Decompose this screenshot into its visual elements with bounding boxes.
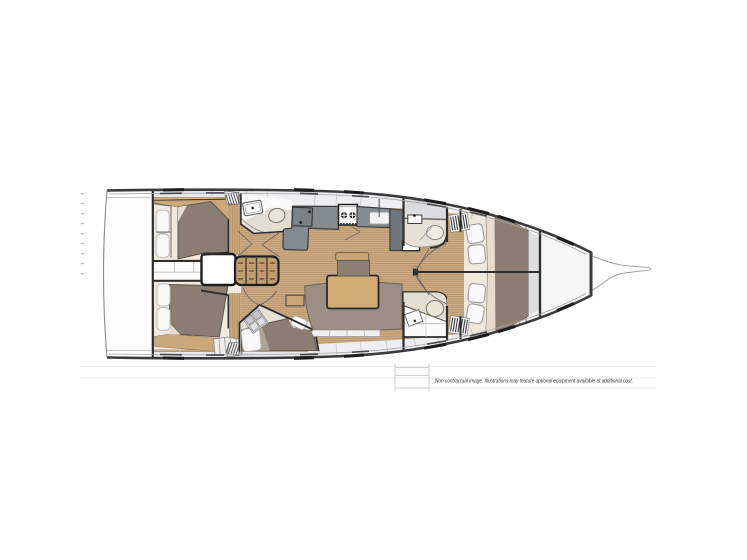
svg-text:Non contractual image. Illustr: Non contractual image. Illustrations may… xyxy=(435,378,633,384)
